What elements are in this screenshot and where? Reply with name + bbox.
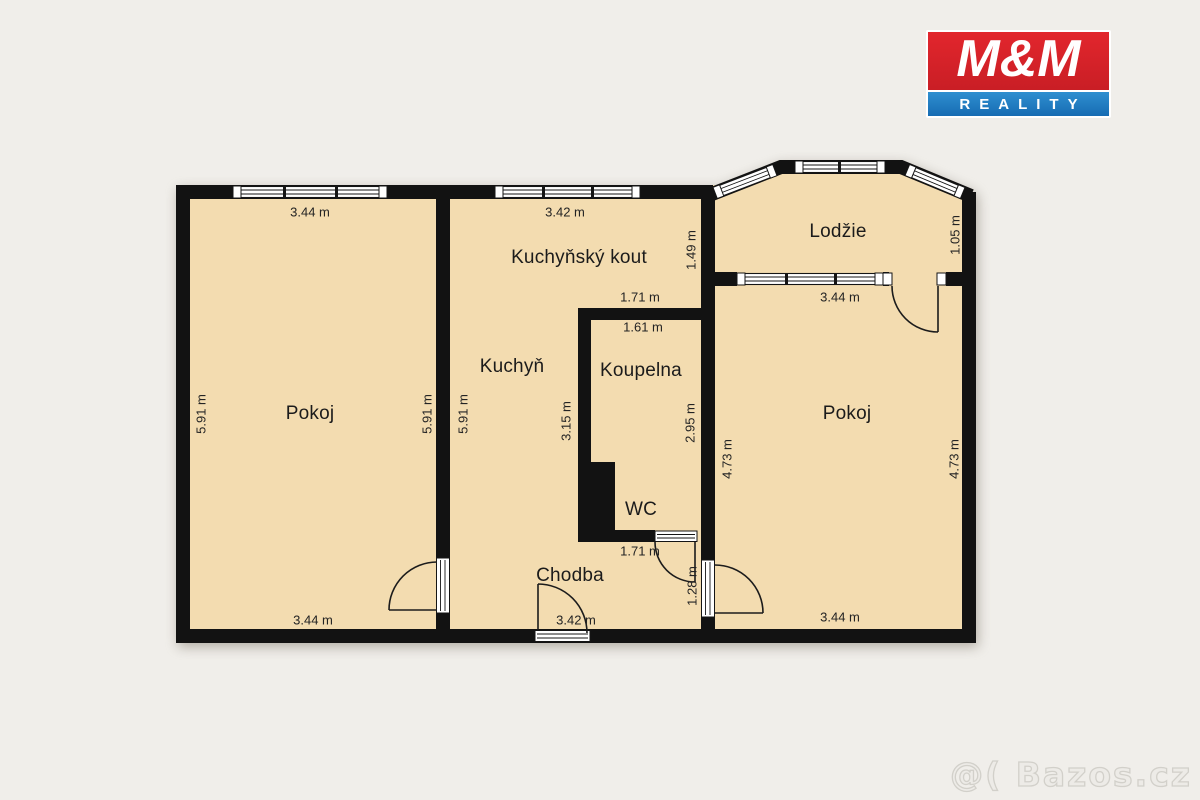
dim-pokoj-left-bottom: 3.44 m	[293, 613, 333, 628]
doorframe-pokoj-left	[437, 558, 450, 613]
dim-lodzie-below: 3.44 m	[820, 290, 860, 305]
dim-koupelna-right: 2.95 m	[683, 403, 698, 443]
window-bay-top	[795, 161, 885, 173]
dim-pokoj-left-top: 3.44 m	[290, 205, 330, 220]
dim-kuchyn-left: 5.91 m	[456, 394, 471, 434]
doorframe-wc	[655, 531, 697, 542]
dim-pokoj-right-left: 4.73 m	[720, 439, 735, 479]
dim-pokoj-right-right: 4.73 m	[947, 439, 962, 479]
logo-reality-block: REALITY	[928, 92, 1109, 116]
logo-mm-block: M&M	[928, 32, 1109, 90]
dim-koupelna-top: 1.61 m	[623, 320, 663, 335]
floorplan-drawing	[0, 0, 1200, 800]
mm-reality-logo: M&M REALITY	[926, 30, 1111, 118]
doorframe-entrance	[535, 631, 590, 642]
wall-c-left	[715, 272, 737, 286]
logo-mm-text: M&M	[956, 29, 1080, 89]
wall-c-right	[946, 272, 962, 286]
dim-kuchynsky-kout-right: 1.49 m	[684, 230, 699, 270]
dim-koupelna-above: 1.71 m	[620, 290, 660, 305]
wall-b-lower	[701, 617, 715, 629]
wall-a-upper	[436, 185, 450, 558]
room-label-wc: WC	[625, 499, 657, 521]
room-label-kuchyn: Kuchyň	[480, 356, 545, 378]
dim-chodba-bottom: 3.42 m	[556, 613, 596, 628]
dim-pokoj-left-left: 5.91 m	[194, 394, 209, 434]
wall-a-lower	[436, 613, 450, 629]
dim-pokoj-left-right: 5.91 m	[420, 394, 435, 434]
dim-kuchyn-koupelna-side: 3.15 m	[559, 401, 574, 441]
window-kuchyn	[495, 186, 640, 198]
room-label-pokoj-right: Pokoj	[823, 403, 872, 425]
window-pokoj-left	[233, 186, 387, 198]
shaft-block	[578, 462, 615, 534]
logo-reality-text: REALITY	[959, 96, 1086, 113]
window-lodzie-inner	[737, 273, 883, 285]
room-label-lodzie: Lodžie	[809, 221, 866, 243]
wall-koupelna-top	[578, 308, 701, 320]
dim-pokoj-right-bottom: 3.44 m	[820, 610, 860, 625]
dim-lodzie-right: 1.05 m	[948, 215, 963, 255]
dim-wc-below: 1.71 m	[620, 544, 660, 559]
dim-kuchyn-top: 3.42 m	[545, 205, 585, 220]
dim-chodba-door-side: 1.28 m	[685, 566, 700, 606]
doorframe-pokoj-right	[702, 560, 715, 617]
floorplan-page: Pokoj Kuchyň Kuchyňský kout Koupelna WC …	[0, 0, 1200, 800]
room-label-koupelna: Koupelna	[600, 360, 682, 382]
wall-b-upper	[701, 188, 715, 560]
bazos-watermark: @( Bazos.cz	[950, 755, 1192, 794]
room-label-chodba: Chodba	[536, 565, 604, 587]
room-label-pokoj-left: Pokoj	[286, 403, 335, 425]
room-label-kuchynsky-kout: Kuchyňský kout	[511, 247, 647, 269]
wall-outer-right	[962, 192, 976, 643]
wall-outer-left	[176, 185, 190, 643]
